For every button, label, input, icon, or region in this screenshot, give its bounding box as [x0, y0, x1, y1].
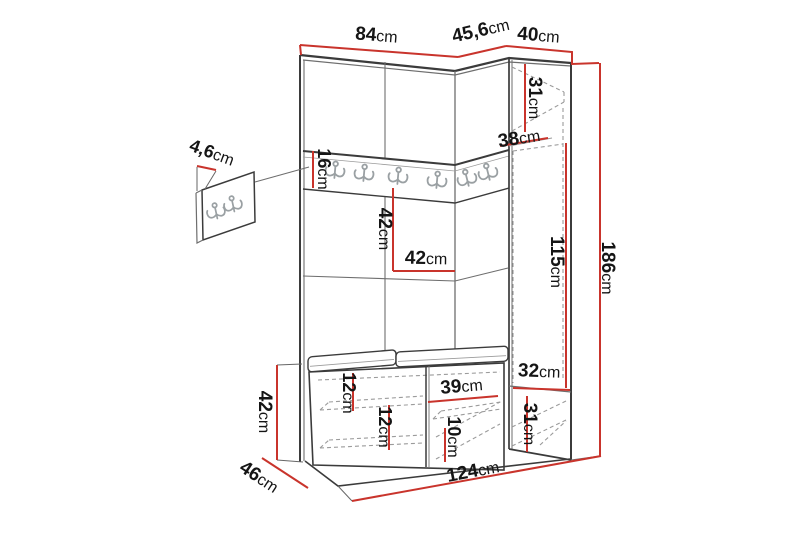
- furniture-dimension-diagram: 84cm 45,6cm 40cm 31cm 38cm 115cm 186cm 4…: [0, 0, 800, 533]
- dim-label-right-door-height: 115cm: [546, 236, 567, 288]
- dim-line-tick: [300, 45, 301, 55]
- dim-label-right-bottom-height: 31cm: [519, 403, 540, 445]
- dim-label-hook-rail-height: 16cm: [314, 148, 334, 189]
- dim-label-middle-section-height: 42cm: [374, 208, 395, 250]
- dim-label-bench-right-gap: 10cm: [444, 416, 464, 457]
- dimension-diagram-page: 84cm 45,6cm 40cm 31cm 38cm 115cm 186cm 4…: [0, 0, 800, 533]
- bench: [308, 346, 508, 470]
- dim-label-bench-shelf-top-gap: 12cm: [339, 372, 359, 413]
- dim-label-middle-section-width: 42cm: [405, 248, 448, 270]
- dim-label-total-height: 186cm: [597, 241, 618, 294]
- dim-label-bench-shelf-gap: 12cm: [375, 406, 395, 447]
- dim-label-bench-height: 42cm: [254, 391, 275, 433]
- dim-label-right-bottom-width: 32cm: [518, 360, 561, 382]
- dim-label-right-top-section-height: 31cm: [524, 77, 545, 119]
